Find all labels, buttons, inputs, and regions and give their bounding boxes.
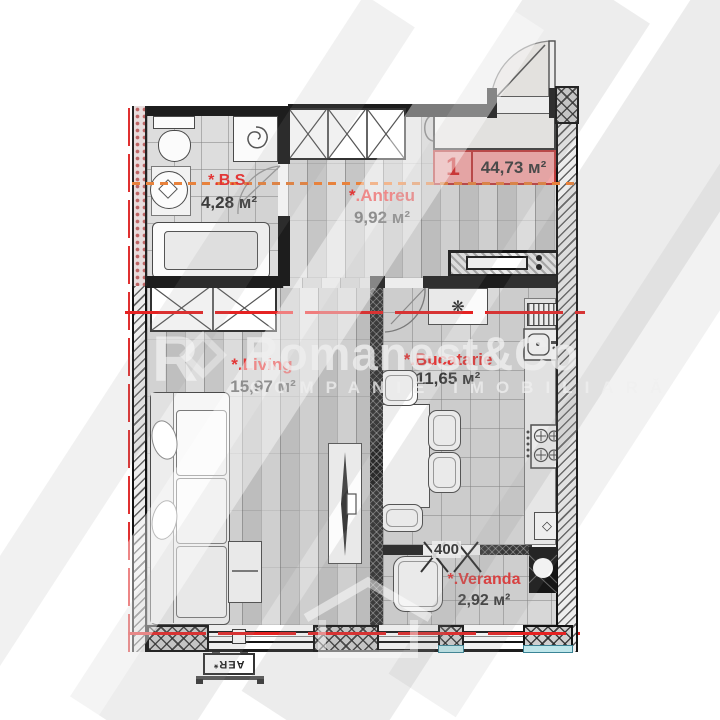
room-label-bucatarie: *.Bucatarie xyxy=(404,350,493,370)
room-label-living: *.Living xyxy=(231,355,292,375)
room-area-antreu: 9,92 м² xyxy=(354,208,410,228)
door-jamb xyxy=(487,88,497,118)
ac-unit: AER* xyxy=(203,653,255,675)
unit-number: 1 xyxy=(435,152,473,183)
entry-bench-inner xyxy=(466,256,528,270)
antreu-wardrobe xyxy=(288,108,406,160)
kitchen-veranda-wall xyxy=(480,545,532,555)
sofa-cushion xyxy=(176,410,227,476)
toilet-tank xyxy=(153,116,195,129)
window-sill xyxy=(523,645,573,653)
room-area-bs: 4,28 м² xyxy=(201,193,257,213)
toilet-bowl xyxy=(158,130,191,162)
room-label-bs: *.B.S. xyxy=(208,172,250,190)
washing-machine-drum-icon xyxy=(238,121,274,157)
bench-knob-icon xyxy=(536,264,542,270)
top-wall-thin xyxy=(288,104,406,108)
wall-pier xyxy=(555,86,579,124)
opening-dimension-label: 400 xyxy=(432,541,461,558)
right-exterior-wall xyxy=(556,117,578,652)
sofa-cushion xyxy=(176,546,227,618)
window-sill xyxy=(438,645,464,653)
top-wall xyxy=(132,106,288,116)
room-label-antreu: *.Antreu xyxy=(349,186,415,206)
bathtub-basin xyxy=(164,231,258,270)
side-table xyxy=(228,541,262,603)
section-line-red xyxy=(128,632,580,635)
entrance-threshold xyxy=(497,96,549,114)
ac-rail xyxy=(196,676,264,680)
dining-chair xyxy=(381,504,423,532)
dining-chair xyxy=(428,410,461,451)
ac-foot xyxy=(257,679,264,684)
room-area-living: 15,97 м² xyxy=(230,377,296,397)
antreu-kitchen-wall xyxy=(423,276,556,288)
radiator xyxy=(527,303,557,326)
red-boundary-line xyxy=(128,106,130,652)
section-line-red xyxy=(125,311,585,314)
side-table-line xyxy=(232,570,258,572)
ventilation-shaft xyxy=(529,547,557,593)
living-wardrobe xyxy=(150,284,277,332)
unit-total-area: 44,73 м² xyxy=(473,152,554,183)
room-area-bucatarie: 11,65 м² xyxy=(416,369,481,389)
cabinet-handle-icon xyxy=(420,113,435,143)
sofa-cushion xyxy=(176,478,227,544)
dining-chair xyxy=(380,370,418,406)
floor-plan-canvas: 1 44,73 м² ❋ xyxy=(0,0,720,720)
wall-pier xyxy=(147,625,209,652)
antreu-kitchen-wall xyxy=(370,276,385,288)
cabinet-diamond-icon: ◇ xyxy=(542,518,552,534)
left-exterior-wall-insulated xyxy=(132,106,147,286)
living-kitchen-wall xyxy=(370,288,383,625)
kitchen-veranda-wall xyxy=(383,545,423,555)
fridge: ❋ xyxy=(428,288,488,325)
guide-line-orange xyxy=(132,182,578,185)
top-wall xyxy=(406,104,491,117)
ac-foot xyxy=(196,679,203,684)
room-label-veranda: *.Veranda xyxy=(448,571,521,589)
bathroom-wall xyxy=(278,106,290,164)
bench-knob-icon xyxy=(536,255,542,261)
dining-chair xyxy=(428,452,461,493)
left-exterior-wall xyxy=(132,286,147,652)
unit-info-box: 1 44,73 м² xyxy=(433,150,556,185)
wall-pier xyxy=(313,625,379,652)
ac-unit-label: AER* xyxy=(213,658,245,670)
room-area-veranda: 2,92 м² xyxy=(458,592,511,610)
tv-screen-icon xyxy=(334,450,358,558)
bathroom-living-wall xyxy=(147,276,283,288)
